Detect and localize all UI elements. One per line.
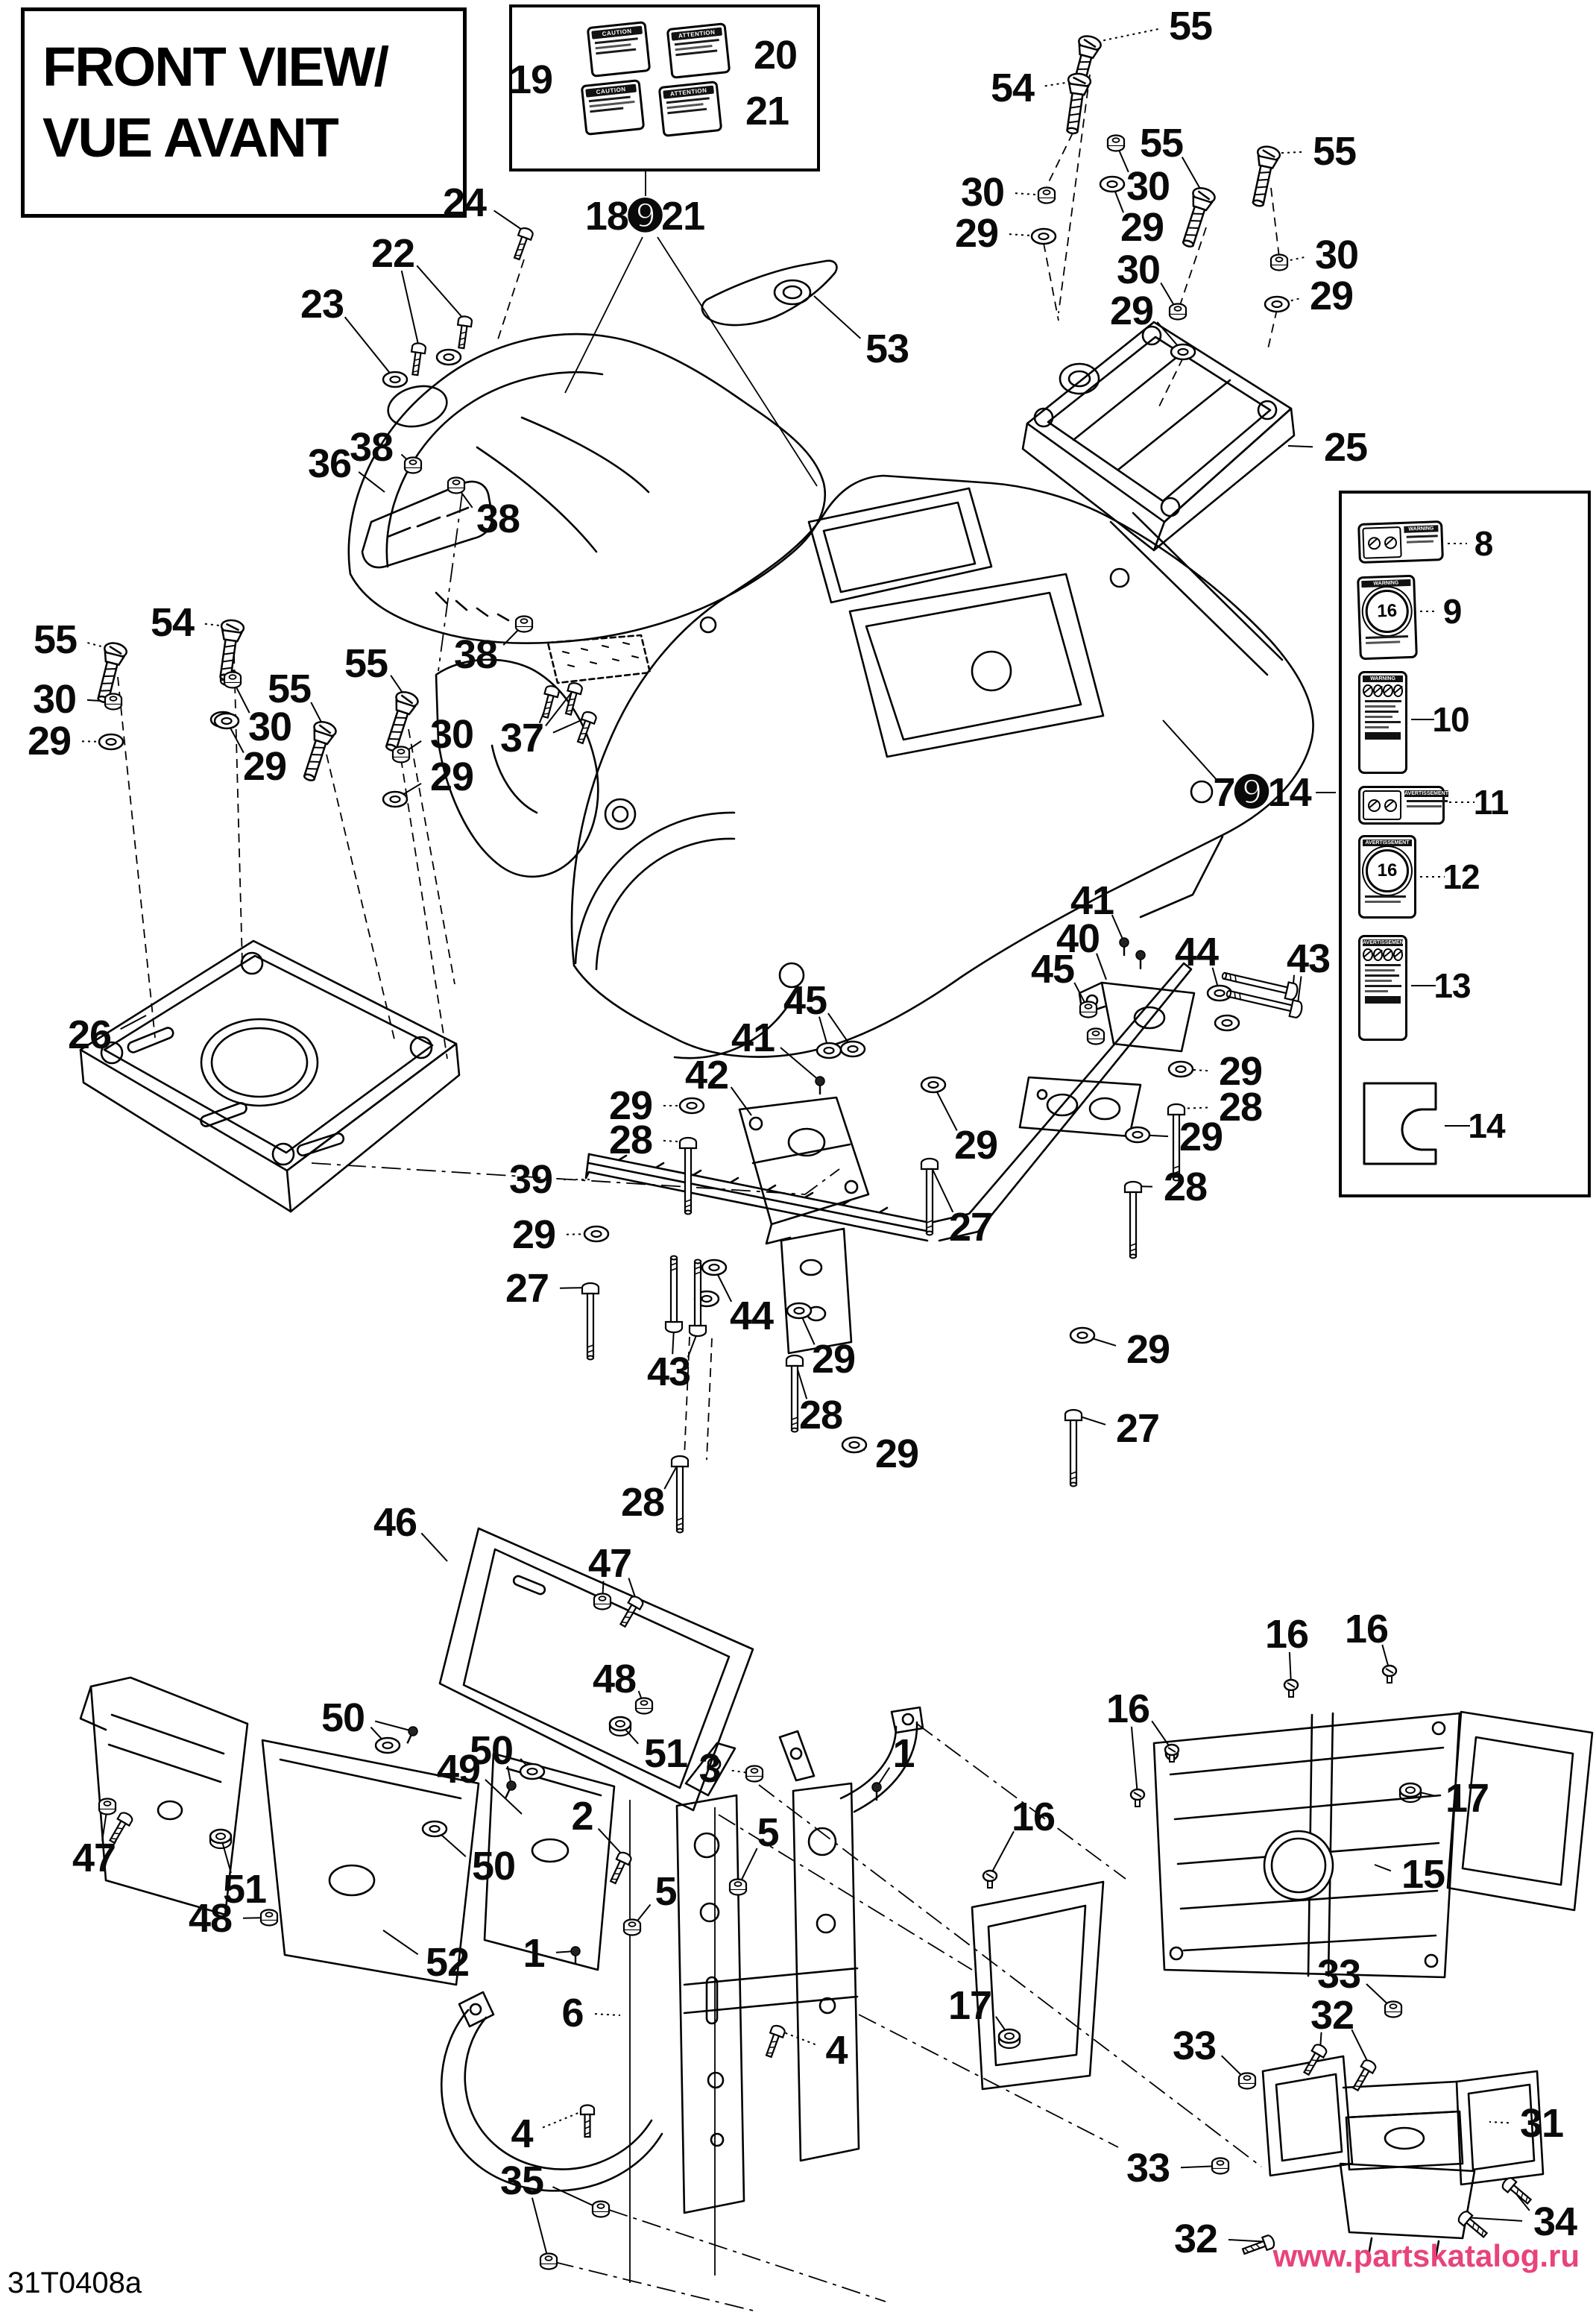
callout-23: 23 [300, 284, 344, 324]
callout-55: 55 [1169, 6, 1212, 46]
callout-2: 2 [571, 1796, 593, 1836]
callout-35: 35 [500, 2161, 543, 2201]
callout-27: 27 [949, 1207, 992, 1247]
callout-55: 55 [268, 669, 311, 709]
callout-17: 17 [948, 1985, 991, 2026]
callout-41: 41 [731, 1018, 775, 1058]
callout-34: 34 [1533, 2202, 1577, 2242]
callout-6: 6 [561, 1993, 583, 2033]
callout-16: 16 [1345, 1609, 1388, 1649]
callout-15: 15 [1401, 1854, 1445, 1894]
callout-55: 55 [344, 643, 388, 684]
callout-33: 33 [1173, 2026, 1216, 2066]
callout-29: 29 [430, 757, 473, 797]
callout-29: 29 [875, 1434, 918, 1474]
callout-52: 52 [426, 1942, 469, 1982]
callout-41: 41 [1070, 881, 1114, 921]
callout-29: 29 [954, 1125, 997, 1165]
callout-29: 29 [1126, 1329, 1170, 1370]
callout-5: 5 [655, 1871, 676, 1912]
callout-40: 40 [1056, 919, 1100, 959]
callout-47: 47 [72, 1838, 116, 1878]
callout-30: 30 [961, 172, 1004, 212]
callout-45: 45 [783, 980, 827, 1021]
callout-50: 50 [321, 1698, 365, 1738]
callout-30: 30 [1315, 235, 1358, 275]
callout-44: 44 [1175, 932, 1218, 972]
callout-55: 55 [1313, 131, 1356, 171]
watermark-text: www.partskatalog.ru [1272, 2238, 1580, 2274]
callout-38: 38 [476, 499, 520, 539]
callout-50: 50 [472, 1846, 515, 1886]
callout-48: 48 [593, 1659, 636, 1699]
callout-17: 17 [1445, 1778, 1489, 1818]
callout-29: 29 [1120, 207, 1164, 248]
callout-1: 1 [892, 1733, 914, 1774]
callout-28: 28 [799, 1395, 842, 1435]
callout-24: 24 [443, 183, 486, 223]
callout-29: 29 [1310, 276, 1353, 316]
callout-29: 29 [955, 213, 998, 253]
callout-5: 5 [757, 1812, 778, 1853]
callout-28: 28 [1219, 1087, 1262, 1127]
callout-29: 29 [28, 721, 71, 761]
callout-30: 30 [1117, 250, 1160, 290]
callout-4: 4 [825, 2030, 847, 2070]
callout-25: 25 [1324, 427, 1367, 467]
callout-7➒14: 7➒14 [1213, 772, 1310, 813]
callout-46: 46 [373, 1502, 417, 1543]
callout-30: 30 [33, 679, 76, 719]
callout-37: 37 [500, 718, 543, 758]
callout-28: 28 [1164, 1167, 1207, 1207]
callout-22: 22 [371, 233, 414, 274]
drawing-code: 31T0408a [7, 2267, 142, 2300]
callout-16: 16 [1106, 1689, 1149, 1729]
callout-28: 28 [609, 1120, 652, 1160]
callout-38: 38 [454, 634, 497, 675]
callout-29: 29 [243, 746, 286, 787]
callout-30: 30 [1126, 166, 1170, 207]
callout-16: 16 [1265, 1614, 1308, 1654]
callout-27: 27 [1116, 1408, 1159, 1449]
callout-53: 53 [865, 329, 909, 369]
callout-42: 42 [685, 1055, 728, 1095]
callout-26: 26 [68, 1015, 111, 1055]
parts-diagram-page: FRONT VIEW/ VUE AVANT CAUTION ATTENTION … [0, 0, 1596, 2315]
callout-32: 32 [1310, 1995, 1354, 2035]
callout-29: 29 [812, 1339, 855, 1379]
callout-49: 49 [437, 1749, 480, 1789]
callout-3: 3 [698, 1748, 720, 1789]
callout-39: 39 [509, 1159, 552, 1200]
callout-47: 47 [588, 1543, 631, 1584]
callout-4: 4 [511, 2114, 532, 2154]
callout-51: 51 [644, 1733, 687, 1774]
callout-54: 54 [151, 602, 194, 643]
callout-29: 29 [1110, 291, 1153, 331]
callout-28: 28 [621, 1482, 664, 1522]
callout-55: 55 [1140, 123, 1183, 163]
callout-33: 33 [1317, 1954, 1360, 1994]
callout-1: 1 [523, 1933, 544, 1974]
callout-44: 44 [730, 1296, 773, 1336]
callout-55: 55 [34, 620, 77, 660]
callout-16: 16 [1012, 1797, 1055, 1837]
callout-32: 32 [1174, 2219, 1217, 2259]
callout-29: 29 [512, 1215, 555, 1255]
callout-30: 30 [430, 714, 473, 755]
callout-43: 43 [647, 1352, 690, 1392]
callout-33: 33 [1126, 2148, 1170, 2188]
callout-36: 36 [308, 444, 351, 484]
callout-38: 38 [350, 427, 393, 467]
callout-43: 43 [1287, 939, 1330, 979]
callout-54: 54 [991, 68, 1034, 108]
callout-31: 31 [1520, 2103, 1563, 2144]
callout-29: 29 [1179, 1117, 1223, 1157]
callout-48: 48 [189, 1898, 232, 1938]
callout-27: 27 [505, 1268, 549, 1308]
callout-30: 30 [248, 707, 291, 747]
